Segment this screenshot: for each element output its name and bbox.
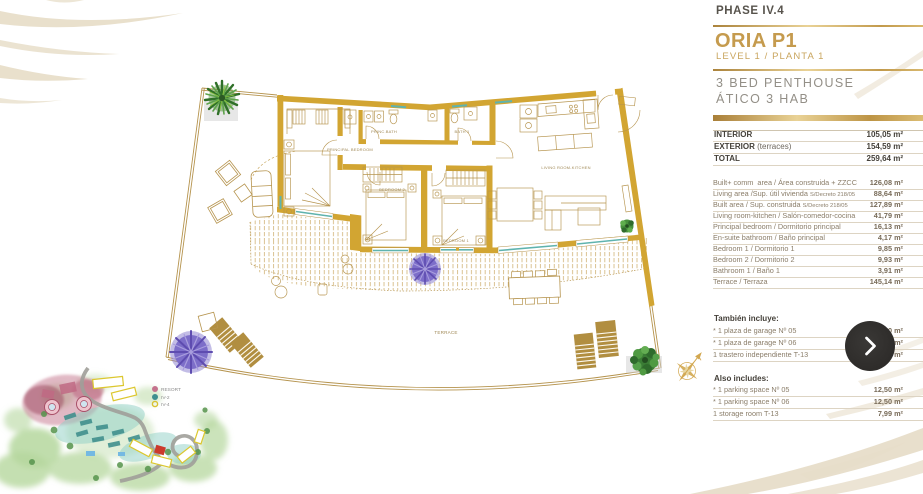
svg-text:PRINC.BATH: PRINC.BATH — [371, 129, 397, 134]
svg-text:RESORT: RESORT — [161, 387, 181, 393]
svg-text:BEDROOM 2: BEDROOM 2 — [379, 187, 405, 192]
svg-text:IV-4: IV-4 — [161, 402, 170, 408]
svg-text:BATH 1: BATH 1 — [455, 129, 470, 134]
svg-text:BEDROOM 1: BEDROOM 1 — [443, 238, 469, 243]
svg-text:IV-2: IV-2 — [161, 395, 170, 401]
svg-text:TERRACE: TERRACE — [434, 330, 457, 335]
svg-text:PRINCIPAL BEDROOM: PRINCIPAL BEDROOM — [327, 147, 373, 152]
svg-text:LIVING ROOM-KITCHEN: LIVING ROOM-KITCHEN — [541, 165, 590, 170]
